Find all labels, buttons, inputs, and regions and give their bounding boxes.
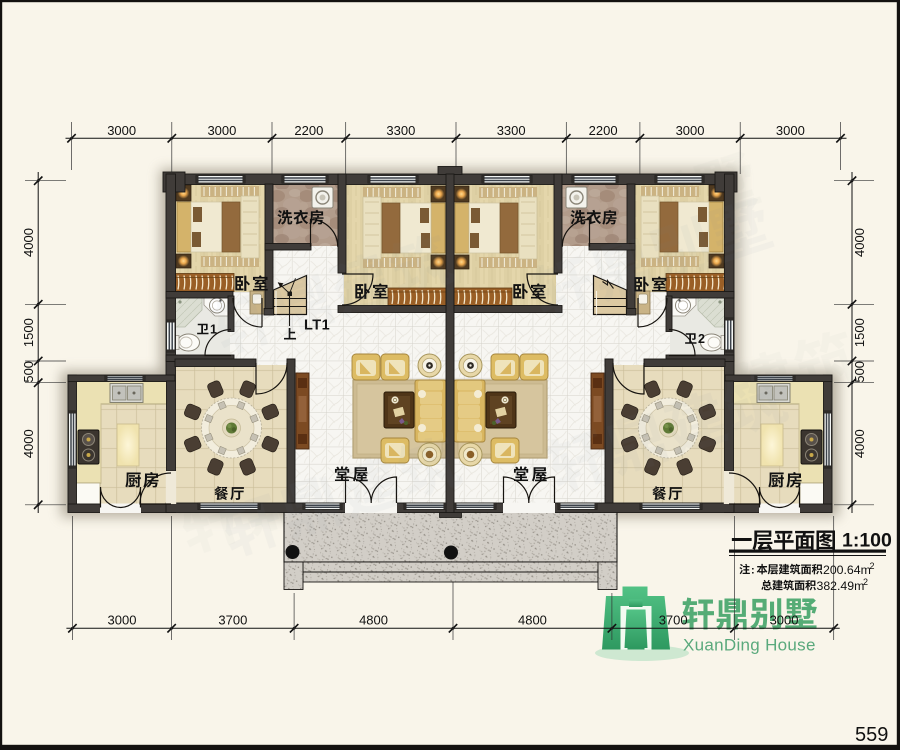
svg-text::: : (751, 565, 755, 577)
svg-text:2: 2 (698, 332, 705, 346)
svg-text:200.64m: 200.64m (823, 563, 871, 577)
svg-text:4800: 4800 (518, 613, 547, 628)
svg-text:500: 500 (21, 361, 36, 383)
svg-text:3000: 3000 (108, 613, 137, 628)
svg-text:2200: 2200 (589, 123, 618, 138)
svg-text:3000: 3000 (107, 123, 136, 138)
svg-text:3000: 3000 (770, 613, 799, 628)
svg-text:3300: 3300 (497, 123, 526, 138)
svg-text:1: 1 (210, 323, 217, 337)
svg-text:1500: 1500 (21, 318, 36, 347)
svg-text:1:100: 1:100 (842, 530, 892, 552)
svg-text:3000: 3000 (776, 123, 805, 138)
svg-text:3000: 3000 (207, 123, 236, 138)
svg-text:2: 2 (870, 561, 875, 571)
svg-text:XuanDing House: XuanDing House (683, 636, 816, 655)
svg-text:500: 500 (852, 361, 867, 383)
svg-text:4000: 4000 (852, 429, 867, 458)
svg-text:3700: 3700 (659, 613, 688, 628)
svg-text:382.49m: 382.49m (817, 579, 865, 593)
svg-text:3300: 3300 (386, 123, 415, 138)
svg-text:3000: 3000 (676, 123, 705, 138)
svg-text:2: 2 (863, 577, 868, 587)
svg-text:4000: 4000 (852, 228, 867, 257)
svg-text:4000: 4000 (21, 228, 36, 257)
svg-text:2200: 2200 (294, 123, 323, 138)
svg-text:4800: 4800 (359, 613, 388, 628)
svg-text:3700: 3700 (218, 613, 247, 628)
svg-text:559: 559 (855, 724, 888, 746)
svg-text:4000: 4000 (21, 429, 36, 458)
svg-text:1500: 1500 (852, 318, 867, 347)
